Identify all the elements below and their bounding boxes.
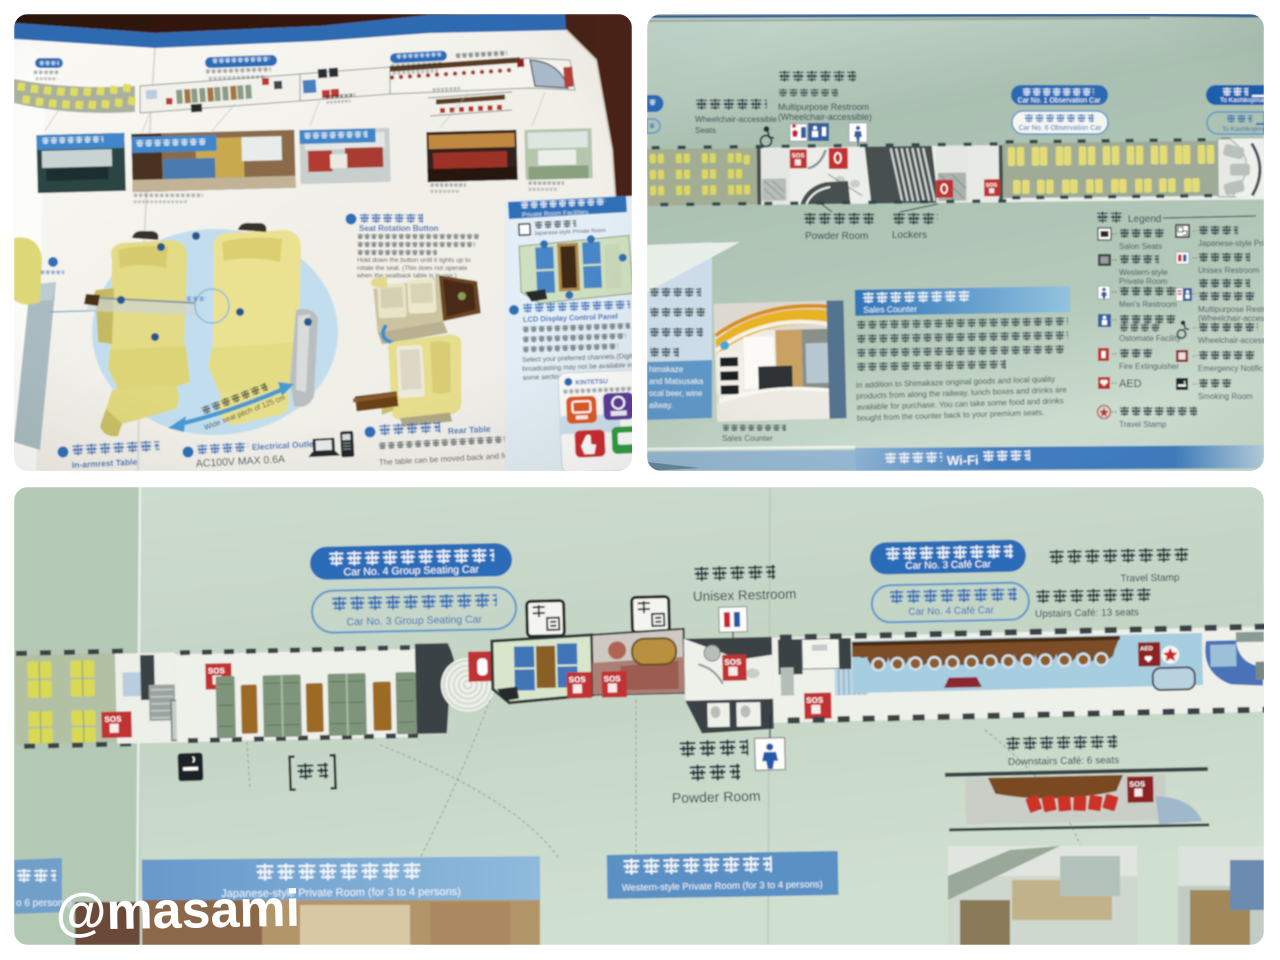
svg-text:Upstairs Café: 13 seats: Upstairs Café: 13 seats [1035, 607, 1139, 620]
svg-text:SOS: SOS [806, 696, 824, 705]
svg-text:AED: AED [1140, 646, 1153, 652]
svg-text:SOS: SOS [208, 666, 226, 675]
svg-text:SOS: SOS [1129, 779, 1145, 788]
svg-text:Powder Room: Powder Room [672, 788, 761, 806]
svg-text:@masami: @masami [55, 880, 300, 942]
svg-text:SOS: SOS [104, 715, 122, 724]
svg-text:Downstairs Café: 6 seats: Downstairs Café: 6 seats [1008, 755, 1119, 768]
svg-text:Unisex Restroom: Unisex Restroom [693, 586, 797, 604]
svg-text:Car No. 3 Café Car: Car No. 3 Café Car [905, 559, 991, 572]
svg-text:Travel Stamp: Travel Stamp [1120, 572, 1180, 584]
svg-text:SOS: SOS [724, 657, 742, 666]
svg-text:SOS: SOS [569, 675, 587, 684]
svg-text:Car No. 4 Café Car: Car No. 4 Café Car [908, 605, 994, 618]
svg-text:SOS: SOS [604, 674, 622, 683]
